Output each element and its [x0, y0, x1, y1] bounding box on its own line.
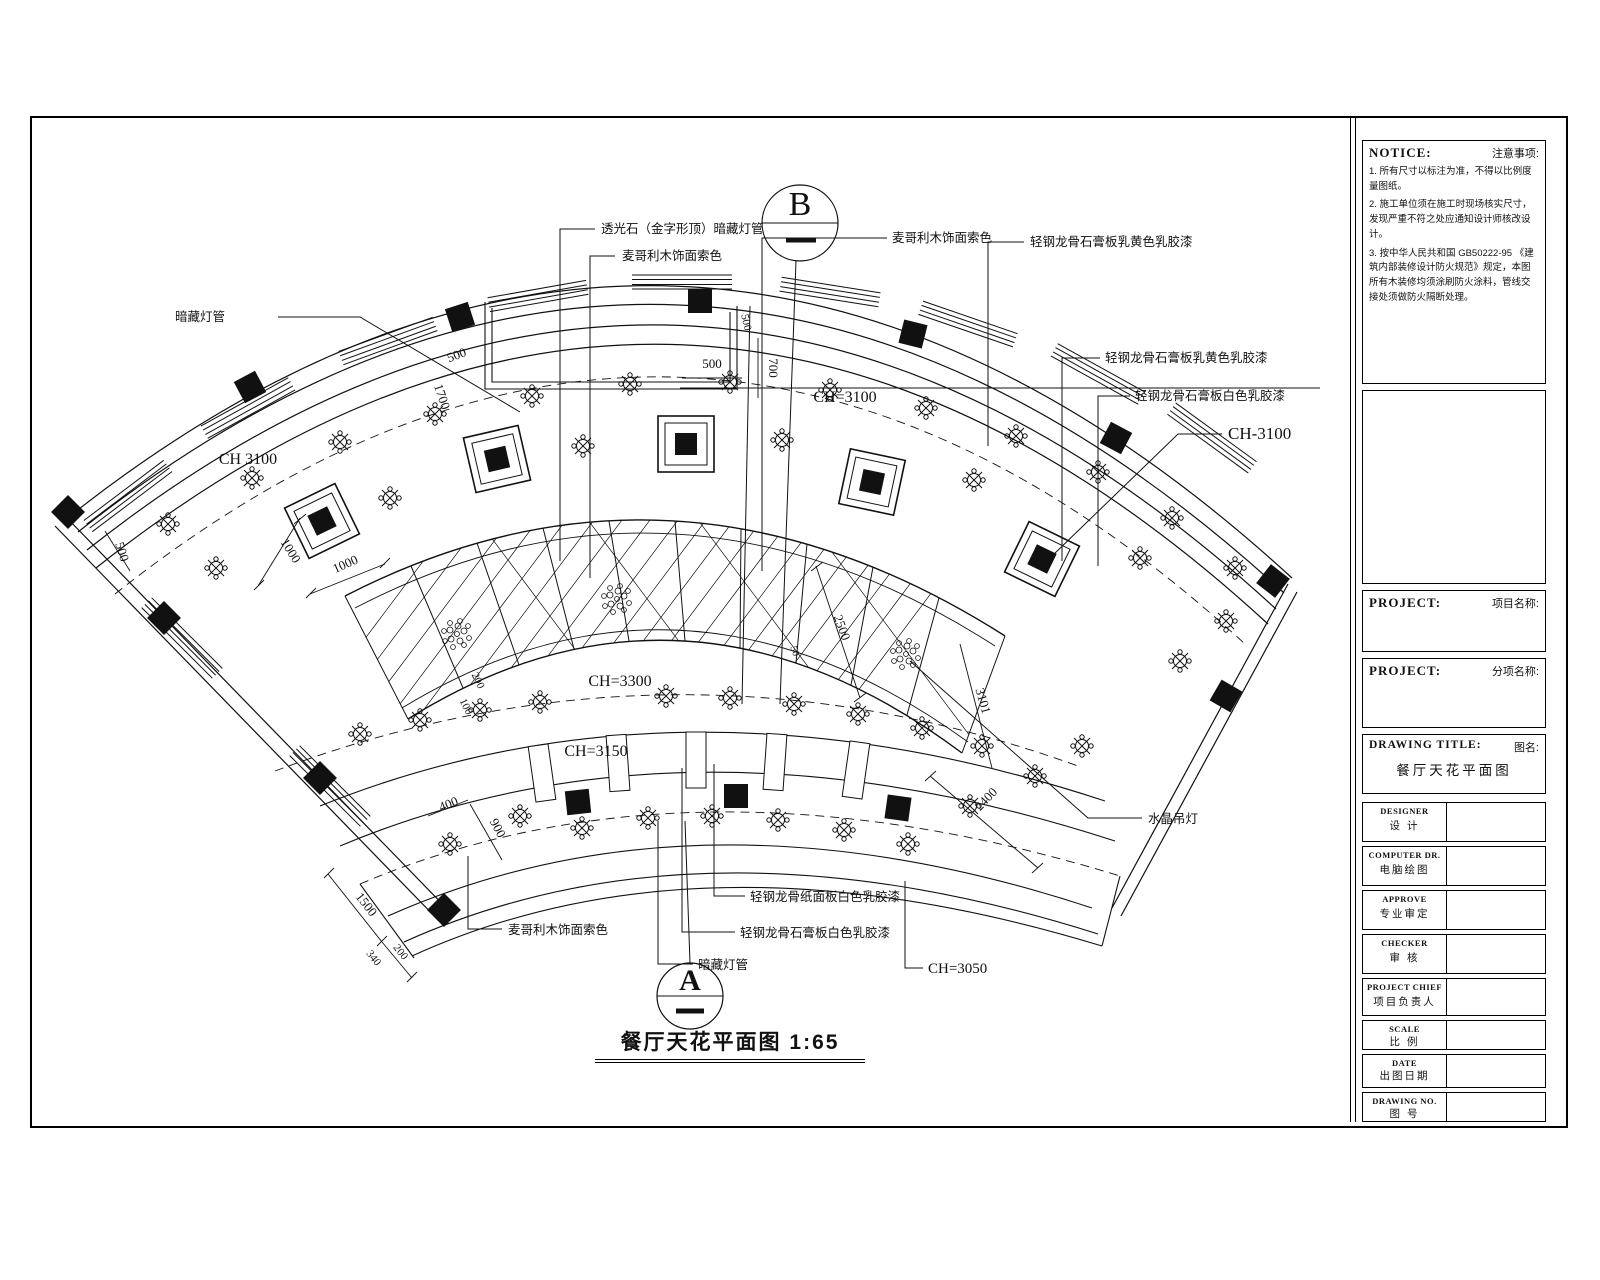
project-box-2: PROJECT: 分项名称:	[1362, 658, 1546, 728]
left-radial-edge	[55, 516, 454, 926]
svg-text:1000: 1000	[330, 552, 360, 576]
svg-text:50: 50	[787, 645, 801, 658]
project2-zh: 分项名称:	[1492, 663, 1539, 679]
section-mark-a: A	[657, 821, 723, 1029]
drawing-caption: 餐厅天花平面图 1:65	[595, 1026, 865, 1063]
svg-text:麦哥利木饰面索色: 麦哥利木饰面索色	[892, 230, 993, 245]
svg-text:轻钢龙骨纸面板白色乳胶漆: 轻钢龙骨纸面板白色乳胶漆	[750, 889, 900, 904]
svg-text:400: 400	[436, 793, 460, 814]
titleblock-row-designer: DESIGNER设 计	[1362, 802, 1546, 842]
ceiling-plan-drawing: B A	[30, 116, 1355, 1124]
svg-text:麦哥利木饰面索色: 麦哥利木饰面索色	[508, 922, 609, 937]
annotation-cove-light: 透光石（金字形顶）暗藏灯管	[601, 221, 764, 236]
ch-label: CH 3100	[219, 451, 277, 468]
crystal-chandelier-icon	[442, 619, 472, 650]
svg-text:500: 500	[702, 356, 722, 371]
drawing-caption-scale: 1:65	[789, 1031, 839, 1054]
svg-text:轻钢龙骨石膏板白色乳胶漆: 轻钢龙骨石膏板白色乳胶漆	[1135, 388, 1285, 403]
ceiling-height-labels: CH 3100 CH=3100 CH-3100 CH=3300 CH=3150 …	[219, 389, 1291, 977]
titleblock-row-chief: PROJECT CHIEF项目负责人	[1362, 978, 1546, 1016]
cad-sheet: B A	[0, 0, 1600, 1280]
section-mark-b: B	[742, 185, 838, 704]
dimension-label: 500	[445, 344, 468, 365]
drawing-title-value: 餐厅天花平面图	[1363, 759, 1545, 779]
svg-text:200: 200	[469, 671, 487, 692]
notice-item: 1. 所有尺寸以标注为准，不得以比例度量图纸。	[1369, 165, 1539, 194]
svg-text:轻钢龙骨石膏板乳黄色乳胶漆: 轻钢龙骨石膏板乳黄色乳胶漆	[1105, 350, 1268, 365]
row-label-en: DESIGNER	[1363, 806, 1446, 816]
titleblock-row-date: DATE出图日期	[1362, 1054, 1546, 1088]
section-b-label: B	[789, 186, 812, 223]
row-value	[1447, 803, 1545, 841]
project2-en: PROJECT:	[1369, 663, 1441, 679]
light-boxes	[51, 289, 1290, 927]
svg-text:100: 100	[457, 697, 475, 718]
notice-title-zh: 注意事项:	[1492, 145, 1539, 161]
svg-text:CH-3100: CH-3100	[1228, 424, 1291, 443]
drawing-title-en: DRAWING TITLE:	[1369, 739, 1482, 755]
svg-text:500: 500	[112, 540, 132, 563]
light-box	[51, 495, 85, 529]
titleblock-row-scale: SCALE比 例	[1362, 1020, 1546, 1050]
svg-text:轻钢龙骨石膏板白色乳胶漆: 轻钢龙骨石膏板白色乳胶漆	[740, 925, 890, 940]
titleblock-row-checker: CHECKER审 核	[1362, 934, 1546, 974]
titleblock-row-computer: COMPUTER DR.电脑绘图	[1362, 846, 1546, 886]
svg-text:CH=3300: CH=3300	[588, 673, 651, 690]
svg-text:轻钢龙骨石膏板乳黄色乳胶漆: 轻钢龙骨石膏板乳黄色乳胶漆	[1030, 234, 1193, 249]
notice-box: NOTICE: 注意事项: 1. 所有尺寸以标注为准，不得以比例度量图纸。 2.…	[1362, 140, 1546, 384]
dimension-lines	[105, 338, 1043, 982]
project1-zh: 项目名称:	[1492, 595, 1539, 611]
blank-box	[1362, 390, 1546, 584]
leader-lines	[278, 229, 1222, 968]
svg-text:CH=3150: CH=3150	[564, 743, 627, 760]
notice-item: 2. 施工单位须在施工时现场核实尺寸，发现严重不符之处应通知设计师核改设计。	[1369, 198, 1539, 242]
svg-text:暗藏灯管: 暗藏灯管	[175, 309, 225, 324]
svg-text:2500: 2500	[831, 613, 854, 643]
project-box-1: PROJECT: 项目名称:	[1362, 590, 1546, 652]
titleblock-separator	[1350, 118, 1356, 1122]
svg-text:3101: 3101	[973, 686, 995, 715]
project1-en: PROJECT:	[1369, 595, 1441, 611]
drawing-title-box: DRAWING TITLE: 图名: 餐厅天花平面图	[1362, 734, 1546, 794]
svg-text:CH=3100: CH=3100	[813, 389, 876, 406]
titleblock-row-approve: APPROVE专业审定	[1362, 890, 1546, 930]
svg-text:麦哥利木饰面索色: 麦哥利木饰面索色	[622, 248, 723, 263]
right-radial-edge	[1112, 584, 1297, 916]
svg-text:340: 340	[364, 948, 384, 969]
row-label-zh: 设 计	[1363, 818, 1446, 833]
svg-text:500: 500	[738, 313, 753, 332]
notice-title-en: NOTICE:	[1369, 145, 1432, 161]
downlight-icon	[157, 513, 179, 535]
notice-item: 3. 按中华人民共和国 GB50222-95 《建筑内部装修设计防火规范》规定，…	[1369, 247, 1539, 306]
svg-text:1500: 1500	[353, 889, 381, 919]
svg-text:200: 200	[391, 942, 411, 963]
svg-text:水晶吊灯: 水晶吊灯	[1148, 812, 1198, 826]
svg-text:暗藏灯管: 暗藏灯管	[698, 957, 748, 972]
svg-text:CH=3050: CH=3050	[928, 961, 987, 977]
svg-text:700: 700	[766, 358, 781, 378]
titleblock-row-drawingno: DRAWING NO.图 号	[1362, 1092, 1546, 1122]
drawing-caption-text: 餐厅天花平面图	[621, 1031, 782, 1054]
drawing-title-zh: 图名:	[1514, 739, 1539, 755]
